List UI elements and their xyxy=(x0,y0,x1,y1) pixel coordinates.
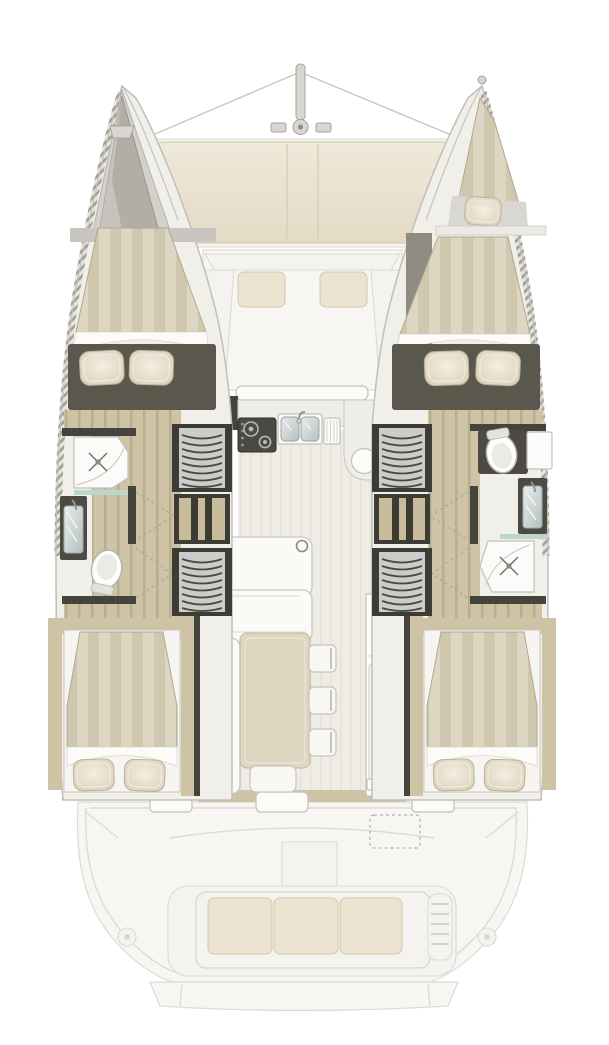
port-shower xyxy=(74,437,128,488)
stool xyxy=(250,766,296,792)
forward-bench-back xyxy=(205,254,400,270)
forward-cockpit xyxy=(199,250,406,390)
galley-drainboard xyxy=(324,418,340,444)
dining-table xyxy=(240,633,310,768)
saloon-door-step xyxy=(256,792,308,812)
pillow xyxy=(424,350,469,386)
bench-cushion-1 xyxy=(208,898,272,954)
forward-seat-cushion-left xyxy=(238,272,285,307)
forward-seat-cushion-right xyxy=(320,272,367,307)
starboard-shelf-unit xyxy=(374,494,430,544)
starboard-aft-cabin xyxy=(404,616,556,796)
pillow xyxy=(433,759,475,792)
mast xyxy=(271,64,331,135)
port-shelf-unit xyxy=(174,494,230,544)
windlass xyxy=(110,126,134,138)
transom-platform xyxy=(150,982,458,1011)
pillow xyxy=(129,350,174,386)
helm-pod xyxy=(428,894,452,960)
port-stairs-forward xyxy=(172,424,232,492)
port-washbasin xyxy=(60,496,87,560)
saloon-front-sill xyxy=(236,386,368,400)
shower-glass xyxy=(74,490,128,495)
galley-stove xyxy=(238,418,276,452)
starboard-stairs-forward xyxy=(372,424,432,492)
boom-fitting-right xyxy=(316,123,331,132)
bathroom-cabinet xyxy=(527,432,552,469)
bow-fitting xyxy=(478,76,486,84)
starboard-toilet-area xyxy=(478,427,552,476)
starboard-washbasin xyxy=(518,478,547,534)
pillow xyxy=(73,759,115,792)
pillow xyxy=(79,350,125,386)
aft-cockpit xyxy=(77,802,527,1011)
pillow xyxy=(124,759,166,792)
cockpit-bench xyxy=(168,886,456,976)
port-stairs-aft xyxy=(172,548,232,616)
pillow xyxy=(475,350,521,386)
starboard-shower xyxy=(480,541,534,592)
bench-cushion-3 xyxy=(340,898,402,954)
port-aft-cabin xyxy=(48,616,200,796)
bench-cushion-2 xyxy=(274,898,338,954)
shower-glass xyxy=(500,534,547,539)
floor-plan-page xyxy=(0,0,609,1045)
pillow xyxy=(484,759,526,792)
pillow xyxy=(464,196,502,226)
starboard-stairs-aft xyxy=(372,548,432,616)
floor-plan-canvas xyxy=(0,0,609,1045)
galley-sink xyxy=(278,412,322,444)
boom-fitting-left xyxy=(271,123,286,132)
